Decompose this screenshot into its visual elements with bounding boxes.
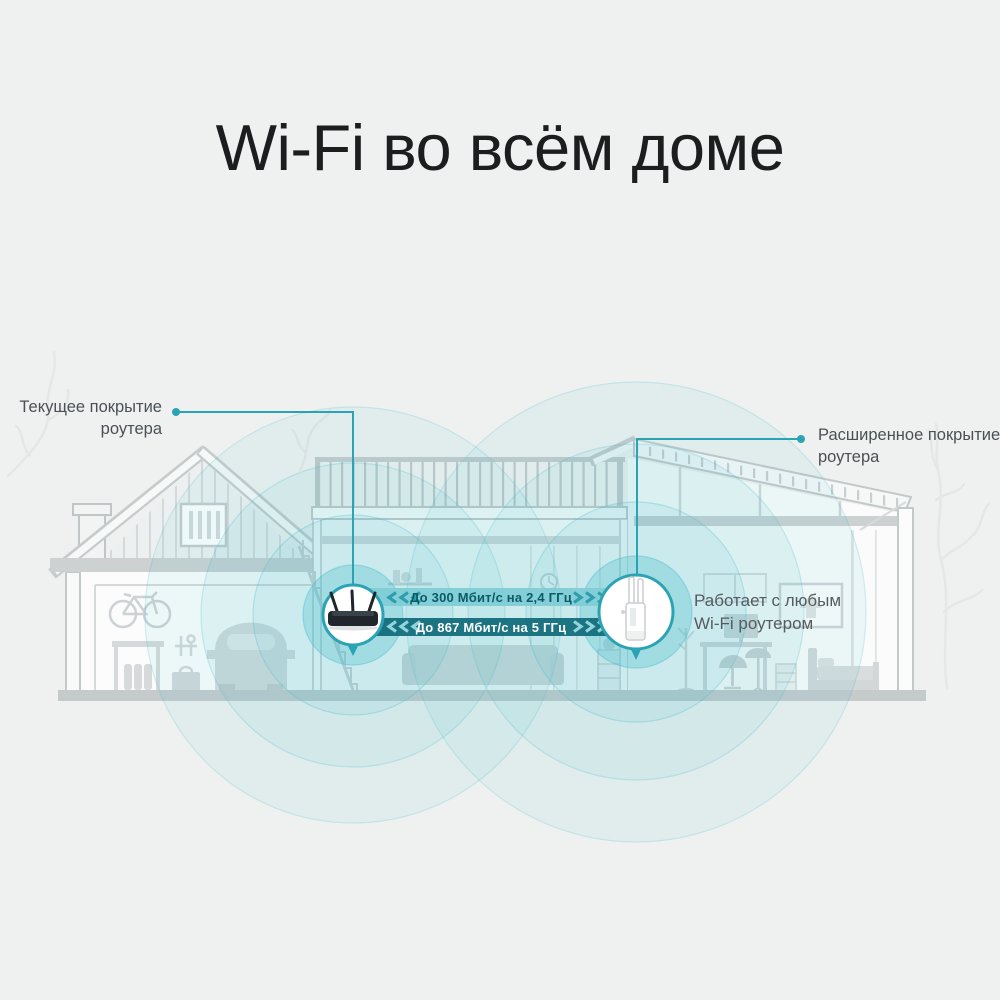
callout-dot-right [797, 435, 805, 443]
callout-current-line1: Текущее покрытие [0, 396, 162, 418]
callout-extended-line2: роутера [818, 446, 1000, 468]
note-line1: Работает с любым [694, 589, 841, 612]
callout-extended-coverage: Расширенное покрытие роутера [818, 424, 1000, 468]
right-wall [898, 508, 913, 692]
house-illustration: До 300 Мбит/с на 2,4 ГГц До 867 Мбит/с н… [0, 0, 1000, 1000]
callout-extended-line1: Расширенное покрытие [818, 424, 1000, 446]
callout-current-coverage: Текущее покрытие роутера [0, 396, 162, 440]
callout-dot-left [172, 408, 180, 416]
extender-compatibility-note: Работает с любым Wi-Fi роутером [694, 589, 841, 635]
band-5ghz-label: До 867 Мбит/с на 5 ГГц [416, 620, 567, 635]
garage-left-wall [66, 572, 80, 692]
promo-banner: Wi-Fi во всём доме [0, 0, 1000, 1000]
band-24ghz-label: До 300 Мбит/с на 2,4 ГГц [410, 590, 572, 605]
callout-current-line2: роутера [0, 418, 162, 440]
note-line2: Wi-Fi роутером [694, 612, 841, 635]
